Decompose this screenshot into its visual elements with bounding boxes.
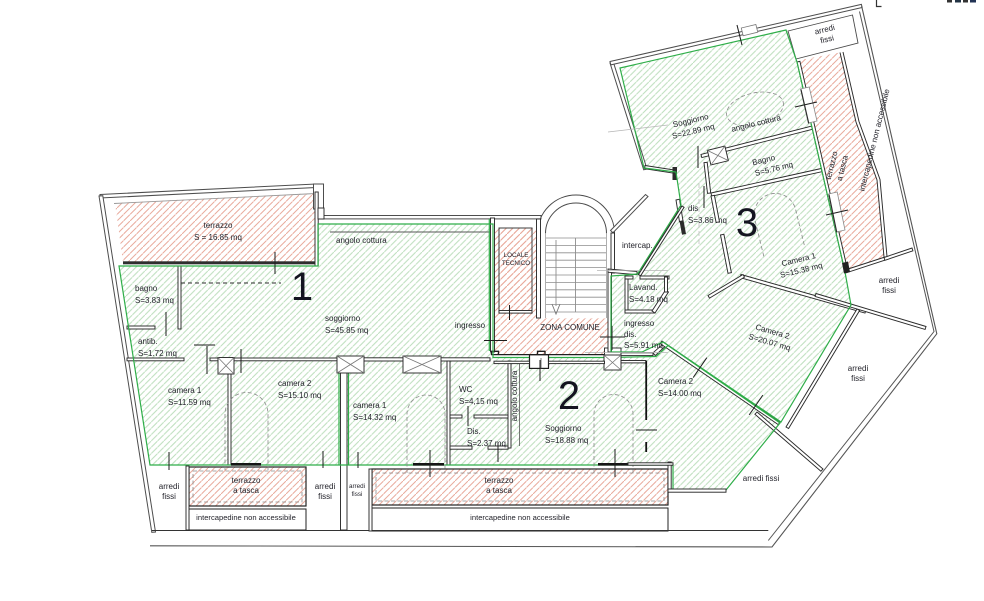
svg-text:TECNICO: TECNICO: [502, 260, 530, 267]
svg-text:Camera 2: Camera 2: [658, 377, 694, 386]
svg-text:S=15.10 mq: S=15.10 mq: [278, 391, 321, 400]
svg-text:S=4.18 mq: S=4.18 mq: [629, 295, 668, 304]
svg-text:intercapedine non accessibile: intercapedine non accessibile: [470, 513, 570, 522]
svg-text:S=45.85 mq: S=45.85 mq: [325, 326, 368, 335]
svg-text:S=1.72 mq: S=1.72 mq: [138, 349, 177, 358]
svg-text:antib.: antib.: [138, 337, 158, 346]
svg-text:S = 16.85 mq: S = 16.85 mq: [194, 233, 242, 242]
svg-text:a tasca: a tasca: [233, 486, 259, 495]
svg-text:ingresso: ingresso: [624, 319, 655, 328]
svg-text:S=2.37 mq: S=2.37 mq: [467, 439, 506, 448]
svg-text:S=5.91 mq: S=5.91 mq: [624, 341, 663, 350]
svg-text:S=18.88 mq: S=18.88 mq: [545, 436, 588, 445]
svg-text:WC: WC: [459, 385, 473, 394]
svg-text:terrazzo: terrazzo: [232, 476, 261, 485]
svg-text:arredi fissi: arredi fissi: [743, 474, 780, 483]
svg-text:fissi: fissi: [882, 286, 896, 295]
svg-text:camera 1: camera 1: [168, 386, 202, 395]
svg-text:angolo cottura: angolo cottura: [336, 236, 387, 245]
svg-text:S=3.83 mq: S=3.83 mq: [135, 296, 174, 305]
svg-text:angolo cottura: angolo cottura: [510, 370, 519, 421]
svg-text:a tasca: a tasca: [486, 486, 512, 495]
svg-text:arredi: arredi: [315, 482, 336, 491]
svg-text:S=14.00 mq: S=14.00 mq: [658, 389, 701, 398]
svg-text:fissi: fissi: [851, 374, 865, 383]
svg-text:Dis.: Dis.: [467, 427, 481, 436]
svg-text:S=3.86 mq: S=3.86 mq: [688, 216, 727, 225]
svg-text:soggiorno: soggiorno: [325, 314, 361, 323]
svg-text:bagno: bagno: [135, 284, 158, 293]
svg-text:arredi: arredi: [349, 483, 365, 490]
svg-text:fissi: fissi: [352, 491, 363, 498]
svg-text:arredi: arredi: [159, 482, 180, 491]
svg-text:terrazzo: terrazzo: [204, 221, 233, 230]
svg-text:terrazzo: terrazzo: [485, 476, 514, 485]
svg-text:intercapedine non accessibile: intercapedine non accessibile: [196, 513, 296, 522]
svg-text:Soggiorno: Soggiorno: [545, 424, 582, 433]
svg-text:fissi: fissi: [162, 492, 176, 501]
svg-text:dis: dis: [688, 204, 698, 213]
svg-text:dis.: dis.: [624, 330, 636, 339]
svg-text:S=14.32 mq: S=14.32 mq: [353, 413, 396, 422]
svg-text:fissi: fissi: [318, 492, 332, 501]
svg-text:arredi: arredi: [848, 364, 869, 373]
svg-text:1: 1: [291, 265, 313, 309]
svg-text:intercap.: intercap.: [622, 241, 653, 250]
svg-text:S=4,15 mq: S=4,15 mq: [459, 397, 498, 406]
svg-text:camera 2: camera 2: [278, 379, 312, 388]
svg-text:ZONA COMUNE: ZONA COMUNE: [540, 323, 600, 332]
svg-text:S=11.59 mq: S=11.59 mq: [168, 398, 211, 407]
svg-text:Lavand.: Lavand.: [629, 283, 657, 292]
svg-text:ingresso: ingresso: [455, 321, 486, 330]
svg-text:2: 2: [558, 374, 580, 418]
svg-text:camera 1: camera 1: [353, 401, 387, 410]
svg-text:arredi: arredi: [879, 276, 900, 285]
svg-text:3: 3: [736, 201, 758, 245]
svg-text:LOCALE: LOCALE: [504, 252, 529, 259]
